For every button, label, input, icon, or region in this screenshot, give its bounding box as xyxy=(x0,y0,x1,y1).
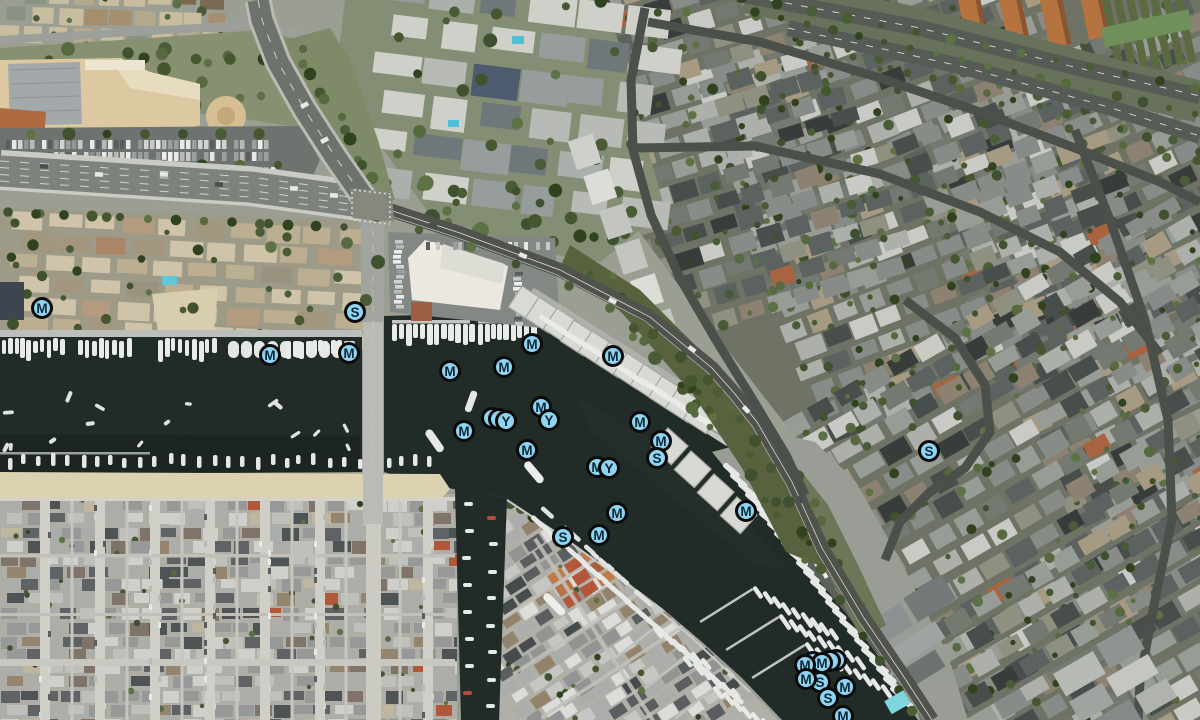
svg-text:M: M xyxy=(593,528,604,543)
svg-text:S: S xyxy=(815,675,824,690)
svg-text:S: S xyxy=(558,530,567,545)
svg-text:M: M xyxy=(740,504,751,519)
svg-text:M: M xyxy=(607,349,618,364)
svg-text:M: M xyxy=(521,443,532,458)
svg-text:M: M xyxy=(343,346,354,361)
svg-text:M: M xyxy=(444,364,455,379)
svg-text:M: M xyxy=(655,434,666,449)
svg-text:M: M xyxy=(839,680,850,695)
svg-text:M: M xyxy=(36,301,47,316)
svg-text:M: M xyxy=(611,506,622,521)
svg-text:M: M xyxy=(498,360,509,375)
svg-text:S: S xyxy=(823,691,832,706)
svg-text:Y: Y xyxy=(544,413,553,428)
svg-text:M: M xyxy=(458,424,469,439)
svg-text:S: S xyxy=(350,305,359,320)
svg-text:M: M xyxy=(634,415,645,430)
svg-text:Y: Y xyxy=(604,461,613,476)
svg-text:M: M xyxy=(800,672,811,687)
svg-text:Y: Y xyxy=(501,414,510,429)
svg-text:M: M xyxy=(526,337,537,352)
svg-text:M: M xyxy=(837,709,848,720)
svg-text:S: S xyxy=(924,444,933,459)
svg-text:M: M xyxy=(816,656,827,671)
svg-text:M: M xyxy=(264,348,275,363)
svg-text:S: S xyxy=(652,451,661,466)
